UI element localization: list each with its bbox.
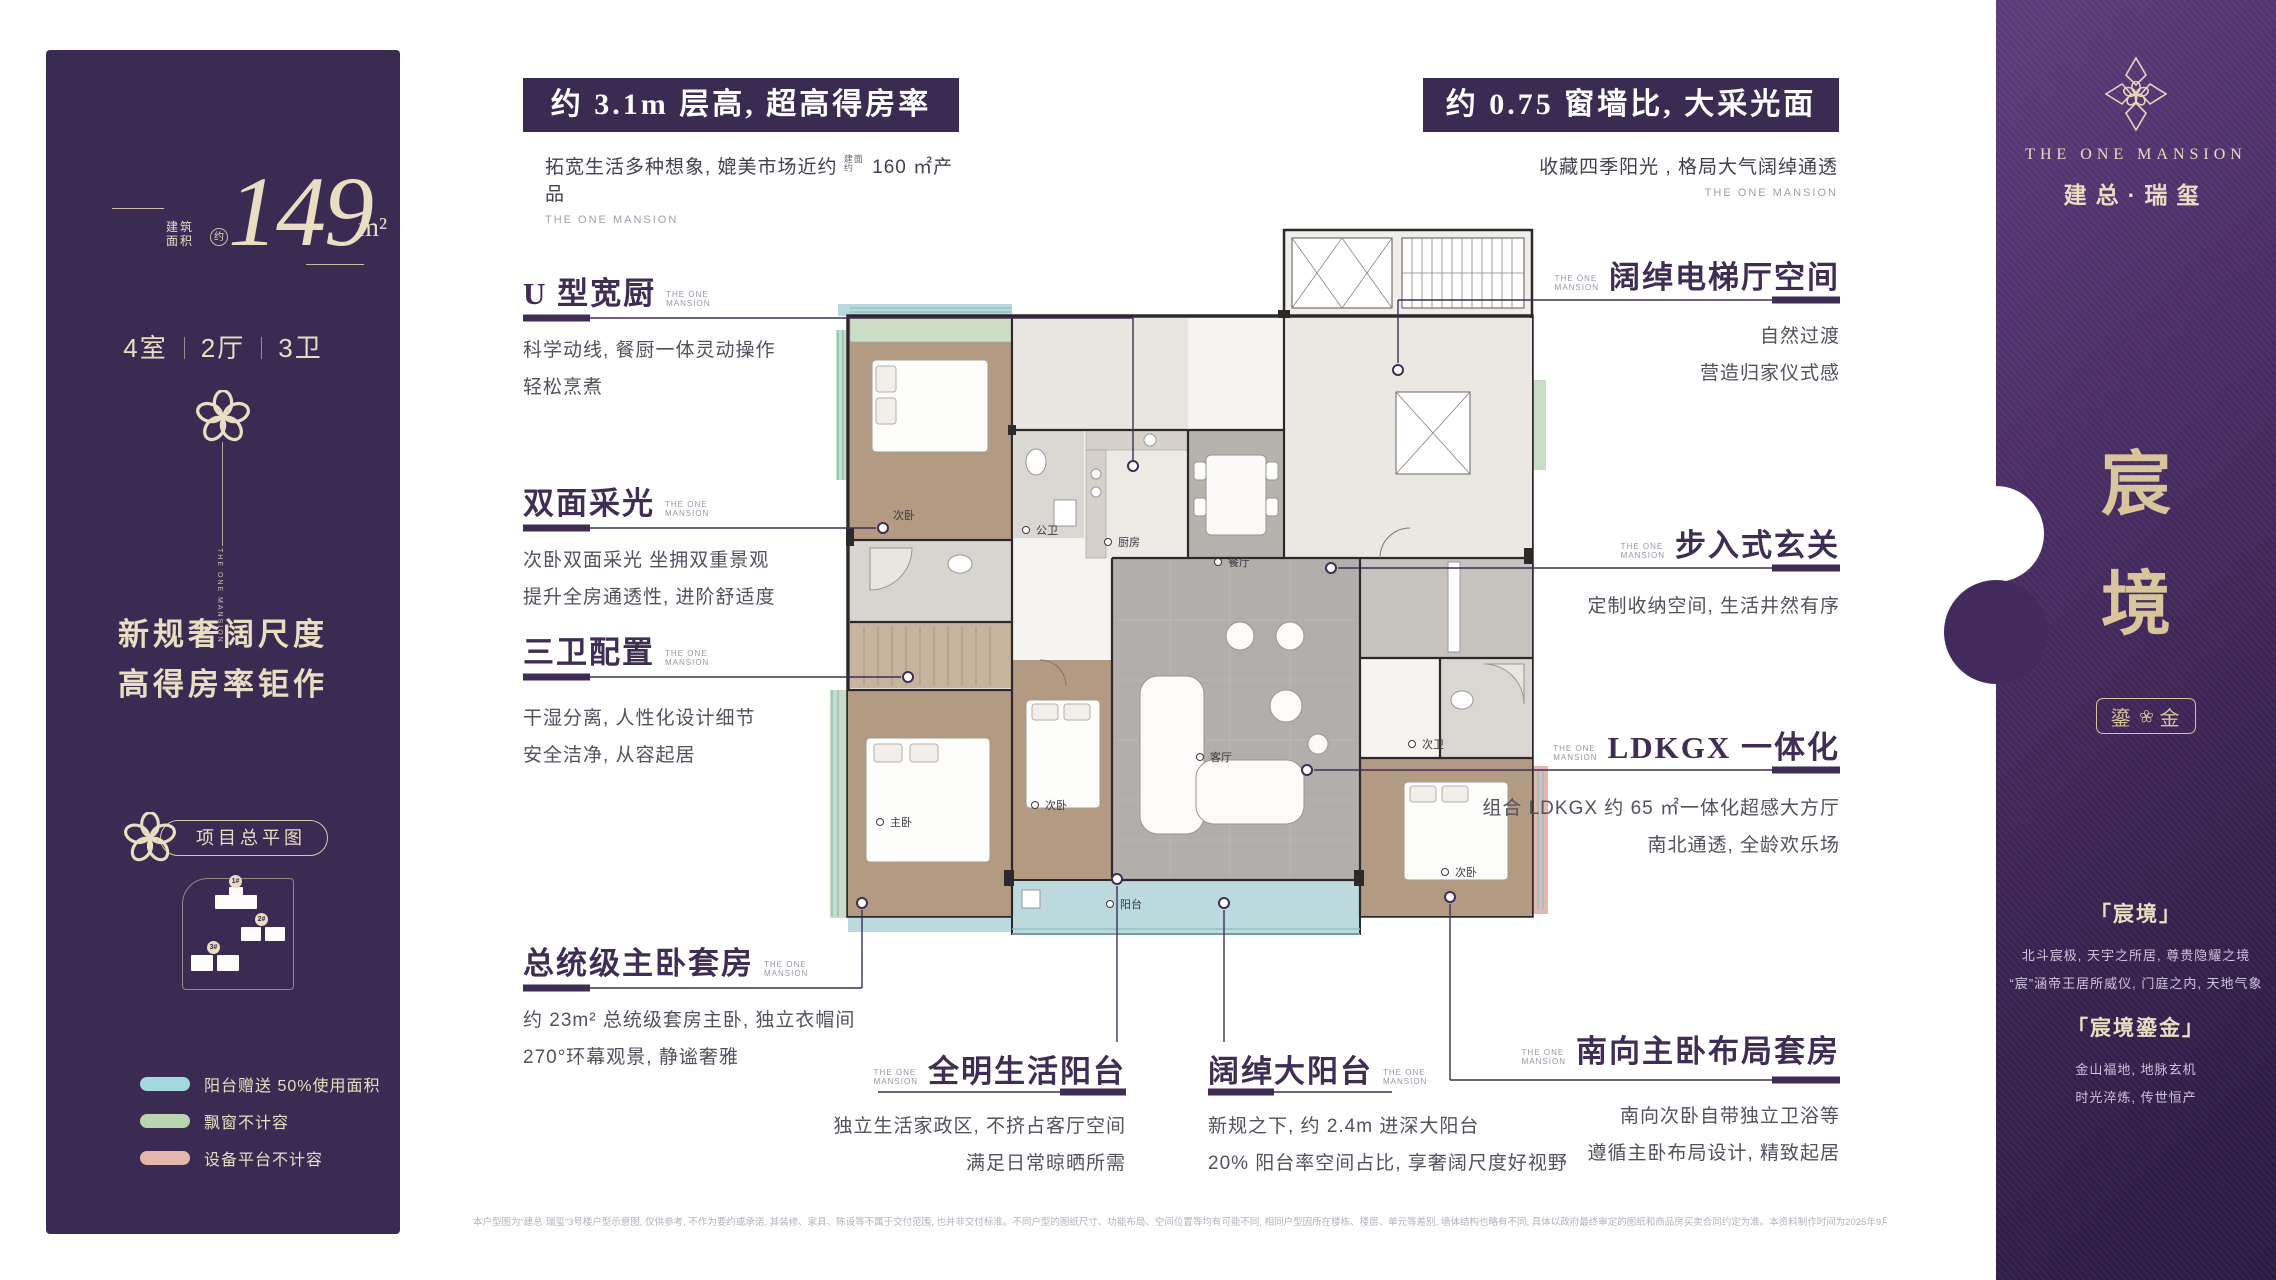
blossom-icon [124, 812, 176, 864]
callout-foyer: THE ONEMANSION 步入式玄关 [1420, 520, 1840, 565]
brand-mini: THE ONEMANSION [764, 960, 808, 983]
theme-char-2: 境 [1996, 548, 2276, 649]
callout-south-suite: THE ONEMANSION 南向主卧布局套房 [1380, 1026, 1840, 1071]
banner-window-wall-ratio: 约 0.75 窗墙比, 大采光面 [1423, 78, 1839, 132]
siteplan-badge-label: 项目总平图 [160, 820, 328, 856]
site-building-tag: 3# [207, 941, 220, 954]
brand-mini: THE ONEMANSION [665, 649, 709, 672]
area-decor-line-top [112, 208, 164, 209]
callout-big-balcony: 阔绰大阳台 THE ONEMANSION [1208, 1046, 1427, 1091]
legend-swatch-balcony [140, 1077, 190, 1091]
brochure-page: { "brand_small": { "l1": "THE ONE", "l2"… [0, 0, 2276, 1280]
room-label-dining: 餐厅 [1228, 555, 1250, 569]
room-label-master: 主卧 [890, 816, 912, 829]
poem-block-1: 「宸境」 北斗宸极, 天宇之所居, 尊贵隐耀之境 “宸”涵帝王居所威仪, 门庭之… [1996, 898, 2276, 998]
right-panel-brand-cn: 建总·瑞玺 [1996, 176, 2276, 210]
mansion-emblem-icon [2098, 52, 2174, 136]
brand-mini: THE ONEMANSION [1555, 274, 1599, 297]
blossom-icon [196, 390, 250, 444]
site-building-tag: 1# [229, 875, 242, 888]
site-building-shape [217, 955, 239, 971]
site-plan-map: 1# 2# 3# [182, 878, 294, 990]
brand-mini: THE ONEMANSION [1522, 1048, 1566, 1071]
siteplan-badge: 项目总平图 [124, 812, 344, 862]
area-unit: m² [358, 212, 387, 243]
legend-label: 设备平台不计容 [204, 1146, 323, 1170]
room-label-balcony: 阳台 [1120, 897, 1142, 911]
legal-disclaimer: 本户型图为“建总·瑞玺”3号楼户型示意图, 仅供参考, 不作为要约或承诺, 其装… [473, 1214, 1887, 1228]
legend-item: 设备平台不计容 [140, 1146, 380, 1170]
room-label-bed-top: 次卧 [893, 508, 915, 522]
spec-rooms: 4室 [123, 333, 167, 363]
callout-elevator-hall: THE ONEMANSION 阔绰电梯厅空间 [1420, 252, 1840, 297]
callout-kitchen: U 型宽厨 THE ONEMANSION [523, 268, 710, 313]
brand-line: THE ONE MANSION [1418, 187, 1838, 199]
legend-swatch-equipment [140, 1151, 190, 1165]
gilded-badge: 鎏 金 [2096, 698, 2196, 734]
area-label: 建筑 面积 [166, 220, 194, 248]
banner-right-subtitle: 收藏四季阳光 , 格局大气阔绰通透 THE ONE MANSION [1418, 152, 1838, 199]
vertical-divider [222, 442, 223, 546]
site-building-shape [265, 927, 285, 941]
room-label-kitchen: 厨房 [1118, 536, 1140, 549]
callout-life-balcony: THE ONEMANSION 全明生活阳台 [746, 1046, 1126, 1091]
callout-three-baths: 三卫配置 THE ONEMANSION [523, 627, 709, 672]
left-info-panel: 建筑 面积 约 149 m² 4室2厅3卫 THE ONE MANSION 新规… [46, 50, 400, 1234]
room-spec: 4室2厅3卫 [46, 328, 400, 365]
legend-item: 阳台赠送 50%使用面积 [140, 1072, 380, 1096]
callout-big-balcony-desc: 新规之下, 约 2.4m 进深大阳台20% 阳台率空间占比, 享奢阔尺度好视野 [1208, 1108, 1568, 1182]
legend-item: 飘窗不计容 [140, 1109, 380, 1133]
brand-mini: THE ONEMANSION [874, 1068, 918, 1091]
callout-dual-light: 双面采光 THE ONEMANSION [523, 478, 709, 523]
spec-baths: 3卫 [278, 333, 322, 363]
site-building-shape [229, 887, 243, 909]
site-building-shape [191, 955, 213, 971]
site-building-shape [241, 927, 261, 941]
banner-ceiling-height: 约 3.1m 层高, 超高得房率 [523, 78, 959, 132]
theme-char-1: 宸 [1996, 428, 2276, 529]
brand-mini: THE ONEMANSION [1383, 1068, 1427, 1091]
blossom-icon [2140, 710, 2153, 723]
right-panel-brand-en: THE ONE MANSION [1996, 146, 2276, 164]
room-label-bath-public: 公卫 [1036, 525, 1058, 537]
panel-headline: 新规奢阔尺度 高得房率钜作 [46, 610, 400, 710]
tiny-note: 建面约 [844, 155, 866, 173]
area-block: 建筑 面积 约 149 m² [100, 162, 350, 280]
callout-kitchen-desc: 科学动线, 餐厨一体灵动操作轻松烹煮 [523, 332, 776, 406]
brand-mini: THE ONEMANSION [1553, 744, 1597, 767]
spec-halls: 2厅 [201, 333, 245, 363]
brand-mini: THE ONEMANSION [665, 500, 709, 523]
room-label-bed-mid: 次卧 [1045, 798, 1067, 812]
callout-three-baths-desc: 干湿分离, 人性化设计细节安全洁净, 从容起居 [523, 700, 756, 774]
callout-life-balcony-desc: 独立生活家政区, 不挤占客厅空间满足日常晾晒所需 [746, 1108, 1126, 1182]
brand-mini: THE ONEMANSION [666, 290, 710, 313]
callout-dual-light-desc: 次卧双面采光 坐拥双重景观提升全房通透性, 进阶舒适度 [523, 542, 776, 616]
poem-block-2: 「宸境鎏金」 金山福地, 地脉玄机 时光淬炼, 传世恒产 [1996, 1012, 2276, 1112]
legend-label: 飘窗不计容 [204, 1109, 289, 1133]
callout-ldkgx: THE ONEMANSION LDKGX 一体化 [1380, 722, 1840, 767]
callout-elevator-hall-desc: 自然过渡营造归家仪式感 [1420, 318, 1840, 392]
callout-master-suite: 总统级主卧套房 THE ONEMANSION [523, 938, 808, 983]
area-approx-circle: 约 [210, 228, 228, 246]
callout-foyer-desc: 定制收纳空间, 生活井然有序 [1420, 588, 1840, 625]
legend-swatch-baywindow [140, 1114, 190, 1128]
room-label-living: 客厅 [1210, 750, 1232, 764]
room-label-bed-br: 次卧 [1455, 865, 1477, 879]
site-building-tag: 2# [255, 913, 268, 926]
area-value: 149 [228, 154, 372, 269]
plan-legend: 阳台赠送 50%使用面积 飘窗不计容 设备平台不计容 [140, 1072, 380, 1183]
brand-mini: THE ONEMANSION [1621, 542, 1665, 565]
legend-label: 阳台赠送 50%使用面积 [204, 1072, 380, 1096]
callout-ldkgx-desc: 组合 LDKGX 约 65 ㎡一体化超感大方厅南北通透, 全龄欢乐场 [1380, 790, 1840, 864]
